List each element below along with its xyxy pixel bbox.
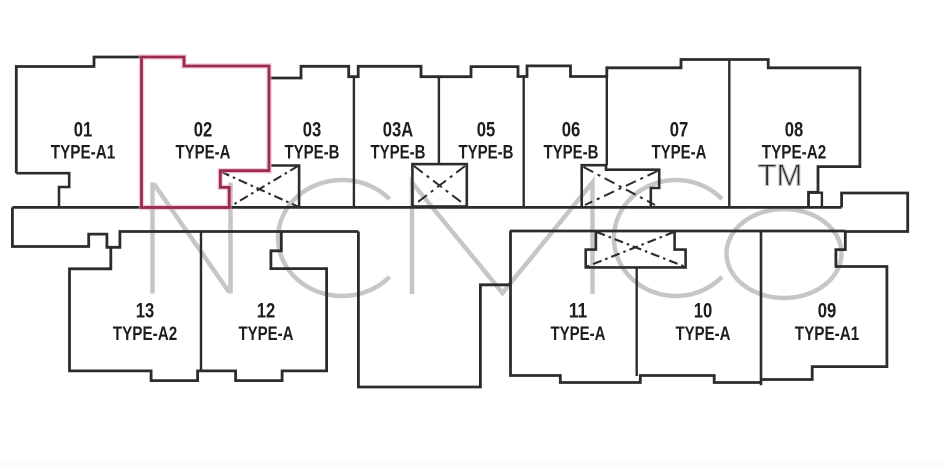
svg-text:09: 09	[818, 299, 837, 322]
svg-text:11: 11	[569, 299, 588, 322]
svg-text:TYPE-B: TYPE-B	[544, 142, 599, 163]
svg-text:TYPE-A: TYPE-A	[551, 324, 606, 345]
svg-text:TYPE-A: TYPE-A	[239, 324, 294, 345]
svg-text:05: 05	[477, 119, 496, 142]
svg-text:02: 02	[194, 119, 213, 142]
svg-text:03A: 03A	[383, 119, 414, 142]
svg-text:TYPE-B: TYPE-B	[459, 142, 514, 163]
svg-text:07: 07	[670, 119, 689, 142]
svg-text:TYPE-A1: TYPE-A1	[795, 324, 860, 345]
svg-text:TYPE-B: TYPE-B	[371, 142, 426, 163]
svg-text:TYPE-B: TYPE-B	[285, 142, 340, 163]
svg-text:13: 13	[136, 299, 155, 322]
svg-text:01: 01	[74, 119, 93, 142]
svg-text:08: 08	[785, 119, 804, 142]
svg-text:TYPE-A: TYPE-A	[652, 142, 707, 163]
svg-text:TYPE-A1: TYPE-A1	[51, 142, 116, 163]
svg-text:10: 10	[694, 299, 713, 322]
svg-text:12: 12	[257, 299, 276, 322]
svg-text:TYPE-A: TYPE-A	[176, 142, 231, 163]
svg-text:TYPE-A2: TYPE-A2	[762, 142, 827, 163]
svg-text:TYPE-A2: TYPE-A2	[113, 324, 178, 345]
svg-text:06: 06	[562, 119, 581, 142]
svg-text:03: 03	[303, 119, 322, 142]
svg-text:TYPE-A: TYPE-A	[676, 324, 731, 345]
